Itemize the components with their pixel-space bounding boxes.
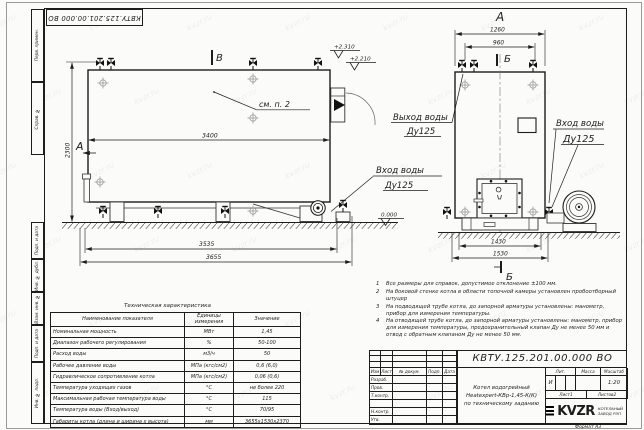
top-stamp-number: КВТУ.125.201.00.000 ВО (48, 14, 141, 22)
rev-header-podp: Подп. (427, 368, 443, 376)
tech-cell: % (185, 338, 234, 349)
staff-razrab: Разраб. (370, 376, 393, 384)
mass-value (576, 376, 601, 391)
margin-box-podp-data-2: Подп. и дата (31, 325, 44, 362)
note-number: 4 (376, 318, 386, 339)
margin-label: Справ. № (35, 108, 40, 129)
tech-row: Расход водым3/ч50 (51, 349, 301, 360)
note-item: 4На отводящей трубе котла, до запорной а… (376, 318, 624, 339)
tech-cell: °С (185, 405, 234, 416)
margin-label: Взам. инв. № (35, 294, 40, 324)
tech-cell: 50-100 (234, 338, 301, 349)
tech-row: Максимальная рабочая температура воды°С1… (51, 394, 301, 405)
tech-cell: Максимальная рабочая температура воды (51, 394, 185, 405)
tech-cell: не более 220 (234, 382, 301, 393)
margin-box-sprav-no: Справ. № (31, 82, 44, 155)
margin-label: Инв. № подл. (35, 378, 40, 408)
margin-box-inv-dubl: Инв. № дубл. (31, 259, 44, 292)
tech-cell: 70/95 (234, 405, 301, 416)
tech-header-value: Значение (234, 313, 301, 327)
note-text: Все размеры для справок, допустимое откл… (386, 281, 624, 288)
note-item: 1Все размеры для справок, допустимое отк… (376, 281, 624, 288)
tech-cell: 0,06 (0,6) (234, 371, 301, 382)
tech-cell: 50 (234, 349, 301, 360)
staff-blank (370, 400, 393, 408)
tech-row: Номинальная мощностьМВт1,45 (51, 327, 301, 338)
company-logo-cell: KVZR КОТЕЛЬНЫЙ ЗАВОД РЭП (545, 399, 627, 424)
drawing-title-line: Heatexpert-КВр-1,45-К(К) (466, 393, 537, 399)
drawing-title-line: по техническому заданию (464, 401, 539, 407)
drawing-title: Котел водогрейный Heatexpert-КВр-1,45-К(… (457, 368, 545, 424)
lit-header: Лит. (546, 368, 576, 376)
tech-cell: 0,6 (6,0) (234, 360, 301, 371)
lit-mass-scale-values: И 1:20 (545, 376, 627, 391)
tech-cell: Гидравлическое сопротивление котла (51, 371, 185, 382)
revision-header: Изм Лист № докум. Подп. Дата (370, 368, 457, 376)
sheet-row: Лист1 Листов2 (545, 391, 627, 399)
tech-header-name: Наименование показателя (51, 313, 185, 327)
margin-label: Подп. и дата (35, 329, 40, 358)
sheet-label: Лист (559, 392, 570, 397)
staff-prov: Пров. (370, 384, 393, 392)
company-name: КОТЕЛЬНЫЙ ЗАВОД РЭП (598, 407, 627, 416)
tech-cell: Температура уходящих газов (51, 382, 185, 393)
tech-cell: МВт (185, 327, 234, 338)
tech-cell: Рабочее давление воды (51, 360, 185, 371)
tech-table: Наименование показателя Единицы измерени… (50, 312, 301, 428)
mass-header: Масса (576, 368, 601, 376)
tech-row: Температура уходящих газов°Сне более 220 (51, 382, 301, 393)
rev-header-data: Дата (443, 368, 457, 376)
tech-cell: °С (185, 382, 234, 393)
tech-row: Температура воды (Вход/выход)°С70/95 (51, 405, 301, 416)
tech-row: Габариты котла (длина и ширина х высота)… (51, 416, 301, 427)
tech-cell: Габариты котла (длина и ширина х высота) (51, 416, 185, 427)
note-number: 1 (376, 281, 386, 288)
tech-table-title: Техническая характеристика (50, 303, 285, 309)
tech-cell: Расход воды (51, 349, 185, 360)
margin-label: Перв. примен. (35, 29, 40, 61)
staff-rows: Разраб. Пров. Т.контр. Н.контр. Утв. (370, 376, 457, 424)
tech-cell: 1,45 (234, 327, 301, 338)
lit-mass-scale-header: Лит. Масса Масштаб (545, 368, 627, 376)
tech-cell: 115 (234, 394, 301, 405)
tech-cell: Диапазон рабочего регулирования (51, 338, 185, 349)
tech-row: Гидравлическое сопротивление котлаМПа (к… (51, 371, 301, 382)
lit-value: И (546, 376, 556, 391)
sheets-label: Листов (598, 392, 614, 397)
staff-tkontr: Т.контр. (370, 392, 393, 400)
margin-box-perv-primen: Перв. примен. (31, 9, 44, 82)
note-number: 2 (376, 289, 386, 303)
tech-row: Диапазон рабочего регулирования%50-100 (51, 338, 301, 349)
note-text: На подводящей трубе котла, до запорной а… (386, 304, 624, 318)
notes-list: 1Все размеры для справок, допустимое отк… (376, 281, 624, 340)
rev-header-docnum: № докум. (393, 368, 427, 376)
margin-label: Подп. и дата (35, 226, 40, 255)
rev-header-izm: Изм (370, 368, 381, 376)
tech-characteristics: Техническая характеристика Наименование … (50, 303, 285, 428)
logo-bars-icon (546, 406, 554, 417)
tech-row: Рабочее давление водыМПа (кгс/см2)0,6 (6… (51, 360, 301, 371)
staff-utv: Утв. (370, 416, 393, 424)
format-label: Формат А3 (575, 425, 601, 430)
tech-table-header-row: Наименование показателя Единицы измерени… (51, 313, 301, 327)
sheets-value: 2 (613, 392, 616, 397)
note-text: На боковой стенке котла в области топочн… (386, 289, 624, 303)
margin-box-inv-podl: Инв. № подл. (31, 362, 44, 424)
margin-box-vzam-inv: Взам. инв. № (31, 292, 44, 325)
tech-cell: Температура воды (Вход/выход) (51, 405, 185, 416)
tech-cell: м3/ч (185, 349, 234, 360)
drawing-title-line: Котел водогрейный (473, 385, 530, 391)
tech-cell: МПа (кгс/см2) (185, 360, 234, 371)
staff-nkontr: Н.контр. (370, 408, 393, 416)
scale-header: Масштаб (601, 368, 628, 376)
revision-rows (370, 350, 457, 368)
margin-box-podp-data-1: Подп. и дата (31, 222, 44, 259)
kvzr-logo: KVZR (557, 404, 595, 419)
note-number: 3 (376, 304, 386, 318)
doc-number: КВТУ.125.201.00.000 ВО (457, 350, 627, 368)
rev-header-list: Лист (381, 368, 393, 376)
note-item: 3На подводящей трубе котла, до запорной … (376, 304, 624, 318)
tech-header-units: Единицы измерения (185, 313, 234, 327)
scale-value: 1:20 (601, 376, 628, 391)
margin-label: Инв. № дубл. (35, 261, 40, 291)
tech-cell: °С (185, 394, 234, 405)
note-item: 2На боковой стенке котла в области топоч… (376, 289, 624, 303)
sheet-value: 1 (570, 392, 573, 397)
tech-cell: мм (185, 416, 234, 427)
tech-cell: Номинальная мощность (51, 327, 185, 338)
tech-cell: 3655х1530х2370 (234, 416, 301, 427)
tech-cell: МПа (кгс/см2) (185, 371, 234, 382)
top-stamp-box: КВТУ.125.201.00.000 ВО (46, 9, 143, 26)
note-text: На отводящей трубе котла, до запорной ар… (386, 318, 624, 339)
